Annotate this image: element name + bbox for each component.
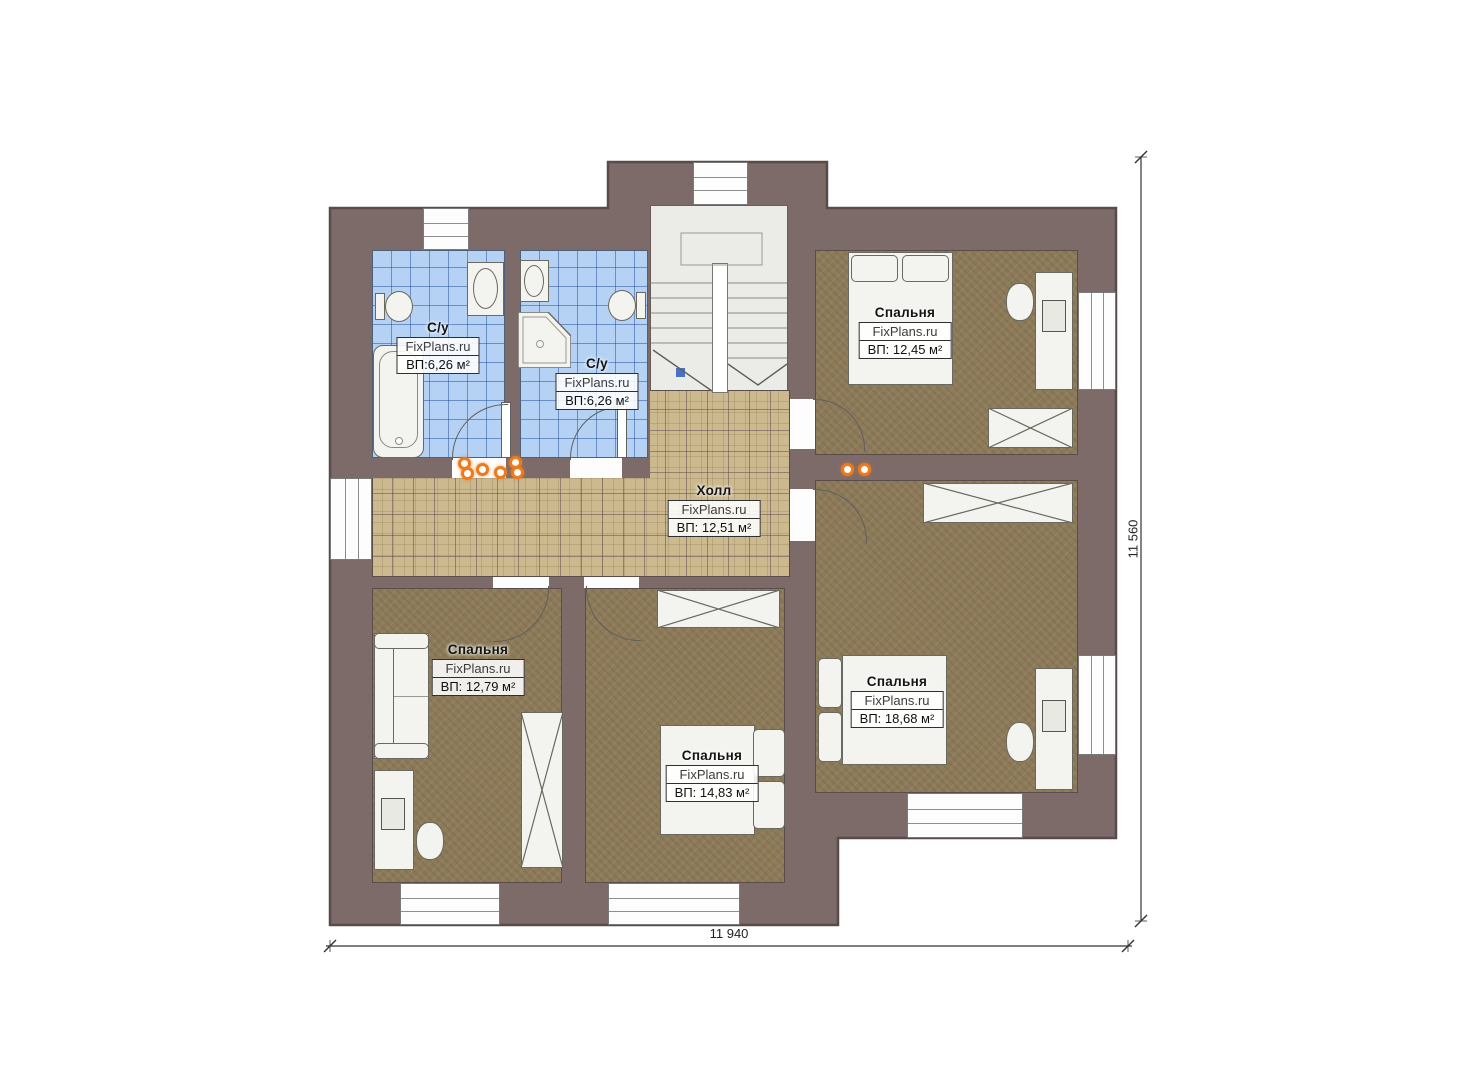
watermark: FixPlans.ru [852, 692, 943, 710]
toilet-tank [375, 293, 385, 320]
watermark: FixPlans.ru [433, 660, 524, 678]
room-label-bath-right: С/у FixPlans.ru ВП:6,26 м² [555, 356, 638, 410]
room-label-bedroom-top-right: Спальня FixPlans.ru ВП: 12,45 м² [859, 305, 952, 359]
door-opening-bedroom-right [790, 489, 815, 541]
toilet-tank [636, 292, 646, 319]
laptop-icon [1042, 700, 1066, 732]
room-area: ВП: 12,51 м² [669, 519, 760, 536]
bathtub-drain-icon [395, 437, 403, 445]
wardrobe [988, 408, 1073, 448]
heating-dot [476, 463, 489, 476]
window-bedroom-bottom-middle [608, 883, 740, 925]
room-area: ВП: 14,83 м² [667, 784, 758, 801]
laptop-icon [1042, 300, 1066, 332]
room-area: ВП: 12,45 м² [860, 341, 951, 358]
laptop-icon [381, 798, 405, 830]
wardrobe [923, 483, 1073, 523]
room-area: ВП: 12,79 м² [433, 678, 524, 695]
room-label-bedroom-bottom-middle: Спальня FixPlans.ru ВП: 14,83 м² [666, 748, 759, 802]
room-name: С/у [396, 320, 479, 335]
chair [416, 822, 444, 860]
watermark: FixPlans.ru [669, 501, 760, 519]
watermark: FixPlans.ru [397, 338, 478, 356]
room-label-bedroom-bottom-left: Спальня FixPlans.ru ВП: 12,79 м² [432, 642, 525, 696]
window-bedroom-top-right [1078, 292, 1116, 390]
bed-pillow [902, 255, 949, 282]
room-info-box: FixPlans.ru ВП: 18,68 м² [851, 691, 944, 728]
bed-pillow [818, 658, 842, 708]
room-name: Спальня [859, 305, 952, 320]
window-bedroom-right [1078, 655, 1116, 755]
sofa-armrest [374, 743, 429, 759]
sink-basin [473, 268, 498, 309]
window-bedroom-right-bottom [907, 793, 1023, 838]
room-info-box: FixPlans.ru ВП: 12,79 м² [432, 659, 525, 696]
room-name: Спальня [851, 674, 944, 689]
watermark: FixPlans.ru [556, 374, 637, 392]
wardrobe [657, 590, 780, 628]
sofa-armrest [374, 633, 429, 649]
room-name: С/у [555, 356, 638, 371]
room-info-box: FixPlans.ru ВП: 12,45 м² [859, 322, 952, 359]
room-area: ВП:6,26 м² [397, 356, 478, 373]
toilet-bowl [385, 291, 413, 322]
room-info-box: FixPlans.ru ВП: 12,51 м² [668, 500, 761, 537]
sofa-seat-line [394, 696, 428, 697]
room-area: ВП:6,26 м² [556, 392, 637, 409]
window-stair-bay [693, 162, 748, 205]
door-opening-bedroom-top-right [790, 399, 815, 449]
room-area: ВП: 18,68 м² [852, 710, 943, 727]
window-bedroom-bottom-left [400, 883, 500, 925]
room-label-bath-left: С/у FixPlans.ru ВП:6,26 м² [396, 320, 479, 374]
toilet-bowl [608, 290, 636, 321]
heating-dot [511, 466, 524, 479]
room-info-box: FixPlans.ru ВП:6,26 м² [555, 373, 638, 410]
heating-dot [858, 463, 871, 476]
dimension-height-label: 11 560 [1126, 520, 1141, 559]
stair-void [712, 263, 728, 393]
room-info-box: FixPlans.ru ВП: 14,83 м² [666, 765, 759, 802]
room-info-box: FixPlans.ru ВП:6,26 м² [396, 337, 479, 374]
watermark: FixPlans.ru [667, 766, 758, 784]
sink-basin [524, 265, 544, 297]
dimension-width-label: 11 940 [710, 926, 749, 941]
window-top-left [423, 208, 469, 250]
heating-dot [494, 466, 507, 479]
room-label-hall: Холл FixPlans.ru ВП: 12,51 м² [668, 483, 761, 537]
bed-pillow [851, 255, 898, 282]
watermark: FixPlans.ru [860, 323, 951, 341]
room-name: Холл [668, 483, 761, 498]
stair-section-marker [676, 368, 685, 377]
floor-plan-canvas: С/у FixPlans.ru ВП:6,26 м² С/у FixPlans.… [0, 0, 1474, 1080]
chair [1006, 283, 1034, 321]
window-hall-left [330, 478, 372, 560]
wardrobe [521, 712, 563, 868]
chair [1006, 722, 1034, 762]
room-name: Спальня [432, 642, 525, 657]
door-opening-bath-right [570, 458, 622, 478]
heating-dot [841, 463, 854, 476]
room-label-bedroom-right: Спальня FixPlans.ru ВП: 18,68 м² [851, 674, 944, 728]
heating-dot [461, 467, 474, 480]
bed-pillow [818, 712, 842, 762]
room-name: Спальня [666, 748, 759, 763]
